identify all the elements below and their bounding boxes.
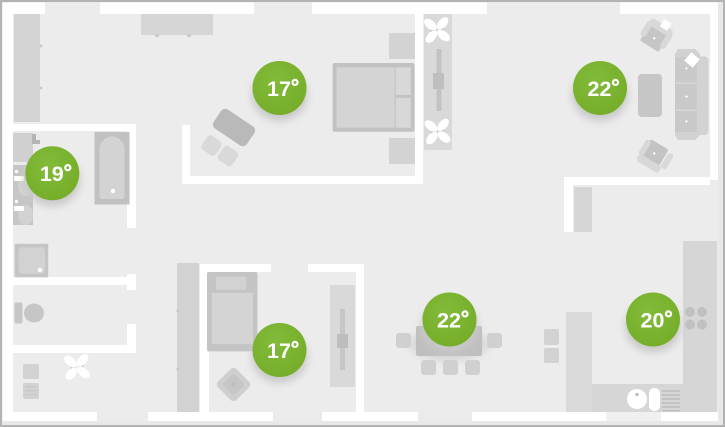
svg-text:22: 22: [437, 308, 461, 332]
svg-text:20: 20: [641, 308, 665, 332]
svg-text:19: 19: [40, 162, 64, 186]
svg-text:17: 17: [267, 77, 291, 101]
svg-text:22: 22: [588, 77, 612, 101]
svg-text:17: 17: [267, 339, 291, 363]
